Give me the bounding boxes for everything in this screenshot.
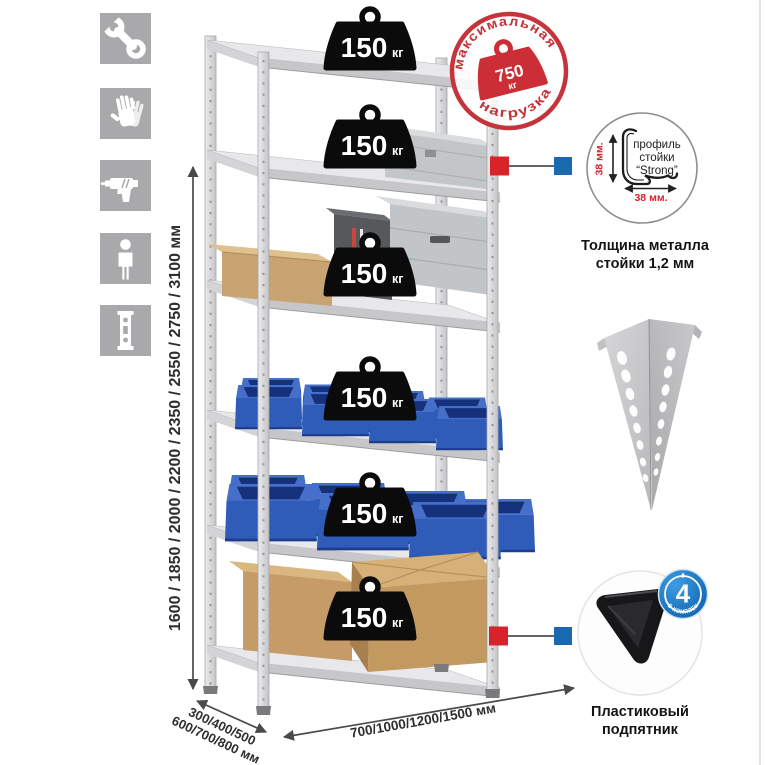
load-value: 150 (341, 258, 388, 289)
shelf-load-badge: 150 кг (326, 9, 414, 68)
load-unit: кг (392, 616, 403, 630)
red-marker (489, 627, 508, 646)
load-value: 150 (341, 382, 388, 413)
wrench-icon (100, 13, 151, 64)
load-value: 150 (341, 498, 388, 529)
foot-callout-connector (489, 627, 572, 646)
post-profile-detail-circle: 38 мм. 38 мм. профиль стойки “Strong” (587, 113, 697, 223)
post-profile-icon (100, 305, 151, 356)
load-unit: кг (392, 396, 403, 410)
load-value: 150 (341, 32, 388, 63)
height-dimension-label: 1600 / 1850 / 2000 / 2200 / 2350 / 2550 … (167, 168, 185, 688)
profile-label: “Strong” (636, 165, 678, 177)
red-marker (490, 157, 509, 176)
rack-foot (203, 686, 218, 694)
cardboard-box (208, 244, 332, 306)
rack-foot (485, 689, 500, 698)
load-unit: кг (392, 46, 403, 60)
rack-foot (434, 664, 449, 672)
drill-icon (100, 160, 151, 211)
load-unit: кг (392, 512, 403, 526)
profile-horizontal-dim: 38 мм. (634, 192, 667, 204)
load-value: 150 (341, 130, 388, 161)
profile-label: стойки (639, 152, 674, 164)
shelf-load-badge: 150 кг (326, 107, 414, 166)
gloves-icon (100, 88, 151, 139)
foot-caption-line1: Пластиковый (560, 703, 720, 721)
rack-foot (256, 706, 271, 715)
shelf-load-badge: 150 кг (326, 359, 414, 418)
profile-caption-line1: Толщина металла (565, 237, 725, 255)
included-count-badge: 4 в комплекте (659, 570, 708, 619)
foot-caption: Пластиковый подпятник (560, 703, 720, 739)
profile-vertical-dim: 38 мм. (594, 142, 606, 175)
profile-callout-connector (490, 157, 572, 176)
profile-caption-line2: стойки 1,2 мм (565, 255, 725, 273)
product-infographic: 150 кг 150 кг 150 кг 150 кг 150 кг (0, 0, 765, 765)
load-unit: кг (392, 272, 403, 286)
corner-post-image (597, 319, 702, 510)
profile-caption: Толщина металла стойки 1,2 мм (565, 237, 725, 273)
profile-label: профиль (633, 139, 681, 151)
included-count: 4 (676, 579, 691, 609)
page-edge-line (759, 0, 761, 765)
max-load-stamp: максимальная нагрузка 750 кг (440, 1, 578, 140)
blue-marker (554, 157, 572, 175)
foot-caption-line2: подпятник (560, 721, 720, 739)
blue-marker (554, 627, 572, 645)
load-value: 150 (341, 602, 388, 633)
load-unit: кг (392, 144, 403, 158)
person-icon (100, 233, 151, 284)
